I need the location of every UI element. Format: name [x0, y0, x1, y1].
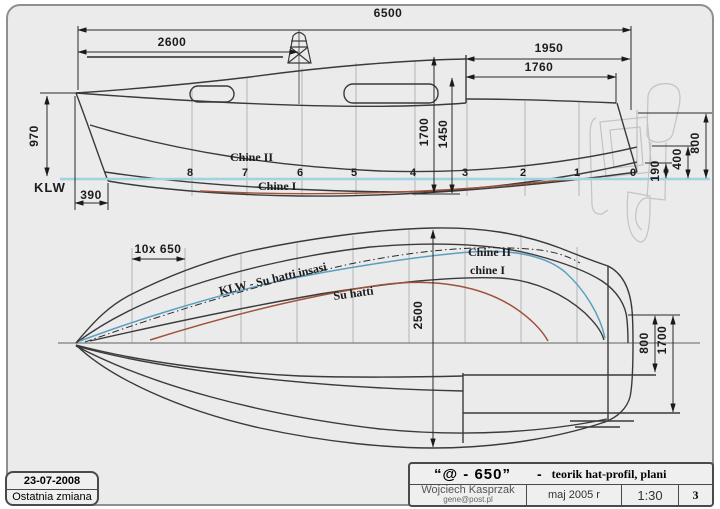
station-3: 3	[462, 167, 468, 179]
station-0: 0	[630, 167, 636, 179]
sheet-number-cell: 3	[679, 485, 712, 505]
dim-overall-length: 6500	[374, 6, 403, 20]
dim-transom-400: 400	[670, 148, 684, 170]
dim-station-spacing: 10x 650	[135, 242, 182, 256]
chine1-label-plan: chine I	[470, 263, 505, 277]
dim-bow-height-970: 970	[27, 125, 41, 147]
coachroof-line	[76, 59, 466, 93]
stem	[76, 93, 108, 181]
station-2: 2	[520, 167, 526, 179]
title-block: “@ - 650” - teorik hat-profil, plani Woj…	[408, 462, 714, 507]
revision-date: 23-07-2008	[7, 473, 97, 490]
dim-aft-1950: 1950	[535, 41, 564, 55]
chine2-label-side: Chine II	[230, 150, 273, 164]
dim-transom-800: 800	[688, 132, 702, 154]
station-8: 8	[187, 167, 193, 179]
dim-height-1700: 1700	[417, 118, 431, 147]
author-cell: Wojciech Kasprzak gene@post.pl	[410, 485, 527, 505]
station-numbers: 8 7 6 5 4 3 2 1 0	[187, 167, 636, 179]
dim-beam-2500: 2500	[411, 301, 425, 330]
waterline-label-plan: Su hatti	[332, 283, 375, 303]
station-7: 7	[242, 167, 248, 179]
sheer-plan-lower	[76, 343, 633, 448]
side-dimension-lines	[40, 26, 712, 210]
title-row: “@ - 650” - teorik hat-profil, plani	[410, 464, 712, 485]
mast-stub	[288, 30, 311, 104]
dim-height-1450: 1450	[436, 120, 450, 149]
klw-waterline-label: KLW	[34, 180, 66, 195]
drawing-subtitle: teorik hat-profil, plani	[552, 467, 667, 482]
plan-hull-lower	[76, 343, 680, 448]
transom-edge	[617, 103, 637, 172]
station-4: 4	[410, 167, 417, 179]
revision-label: Ostatnia zmiana	[7, 490, 97, 505]
sheer-line	[76, 93, 466, 106]
title-block-bottom-row: Wojciech Kasprzak gene@post.pl maj 2005 …	[410, 485, 712, 505]
dim-transom-190: 190	[648, 160, 662, 182]
plan-view: 10x 650 2500 800 1700 KLW - Su hatti ins…	[58, 228, 700, 448]
klw-construction-label: KLW - Su hatti insasi	[218, 259, 329, 298]
dim-forefoot-390: 390	[80, 188, 102, 202]
station-1: 1	[574, 167, 580, 179]
dim-aft-1760: 1760	[525, 60, 554, 74]
author-email: gene@post.pl	[443, 495, 493, 505]
dim-plan-800: 800	[637, 332, 651, 354]
scale-cell: 1:30	[622, 485, 679, 505]
station-5: 5	[351, 167, 357, 179]
date-cell: maj 2005 r	[527, 485, 622, 505]
chine1-profile	[105, 162, 637, 192]
title-dash: -	[537, 466, 542, 482]
dim-plan-1700: 1700	[655, 326, 669, 355]
dim-mast-position: 2600	[158, 35, 187, 49]
drawing-title: “@ - 650”	[434, 466, 511, 483]
cockpit-coaming	[466, 99, 616, 103]
revision-box: 23-07-2008 Ostatnia zmiana	[5, 471, 99, 506]
chine1-label-side: Chine I	[258, 179, 297, 193]
author-name: Wojciech Kasprzak	[421, 485, 514, 495]
side-view: 6500 2600 1950 1760 970 390 1700 1450 80…	[27, 6, 712, 242]
cabin-window-aft	[344, 84, 438, 103]
cabin-window-fwd	[190, 86, 234, 102]
lines-plan-svg: 6500 2600 1950 1760 970 390 1700 1450 80…	[0, 0, 720, 509]
deck-inner-plan-lower	[76, 346, 607, 433]
station-6: 6	[297, 167, 303, 179]
chine2-profile	[90, 125, 637, 172]
boat-lines-drawing-sheet: 6500 2600 1950 1760 970 390 1700 1450 80…	[0, 0, 720, 509]
chine2-label-plan: Chine II	[468, 245, 511, 259]
